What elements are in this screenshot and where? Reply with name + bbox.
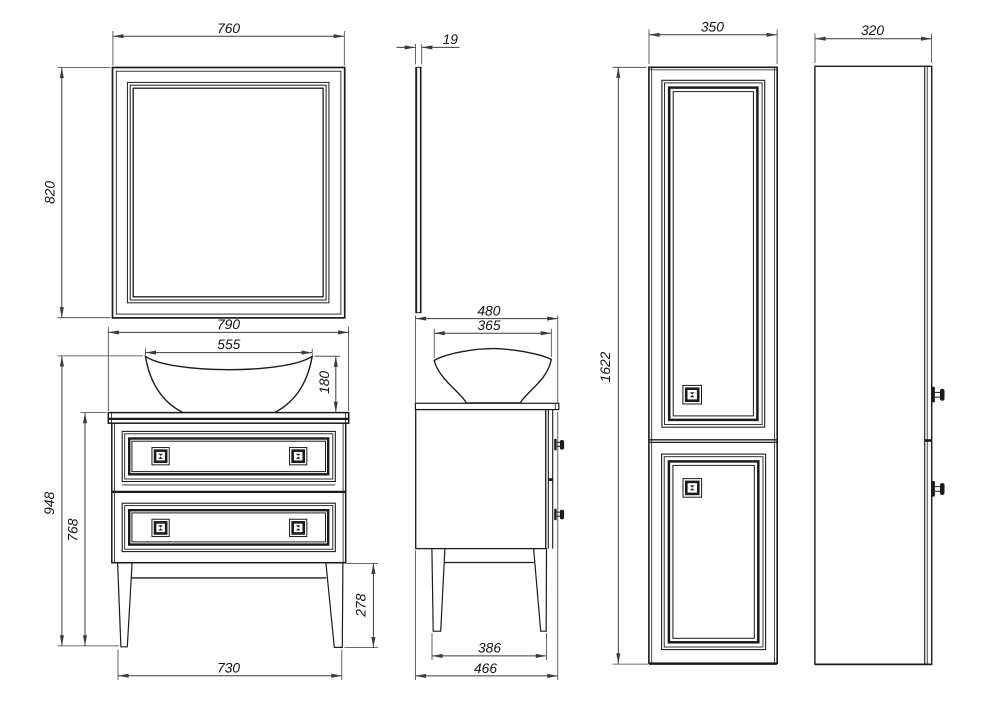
svg-text:180: 180 — [317, 371, 332, 394]
svg-text:760: 760 — [217, 21, 240, 36]
svg-text:386: 386 — [478, 641, 501, 656]
svg-text:19: 19 — [443, 32, 459, 47]
svg-text:480: 480 — [477, 303, 500, 318]
svg-text:320: 320 — [861, 23, 884, 38]
svg-text:730: 730 — [217, 661, 240, 676]
svg-text:278: 278 — [354, 593, 369, 617]
svg-text:555: 555 — [217, 337, 240, 352]
svg-text:466: 466 — [474, 661, 497, 676]
svg-text:768: 768 — [65, 518, 80, 541]
svg-text:350: 350 — [701, 19, 724, 34]
svg-text:790: 790 — [217, 317, 240, 332]
svg-text:1622: 1622 — [598, 351, 613, 382]
svg-text:365: 365 — [477, 318, 500, 333]
svg-text:820: 820 — [42, 181, 57, 204]
svg-text:948: 948 — [42, 491, 57, 514]
